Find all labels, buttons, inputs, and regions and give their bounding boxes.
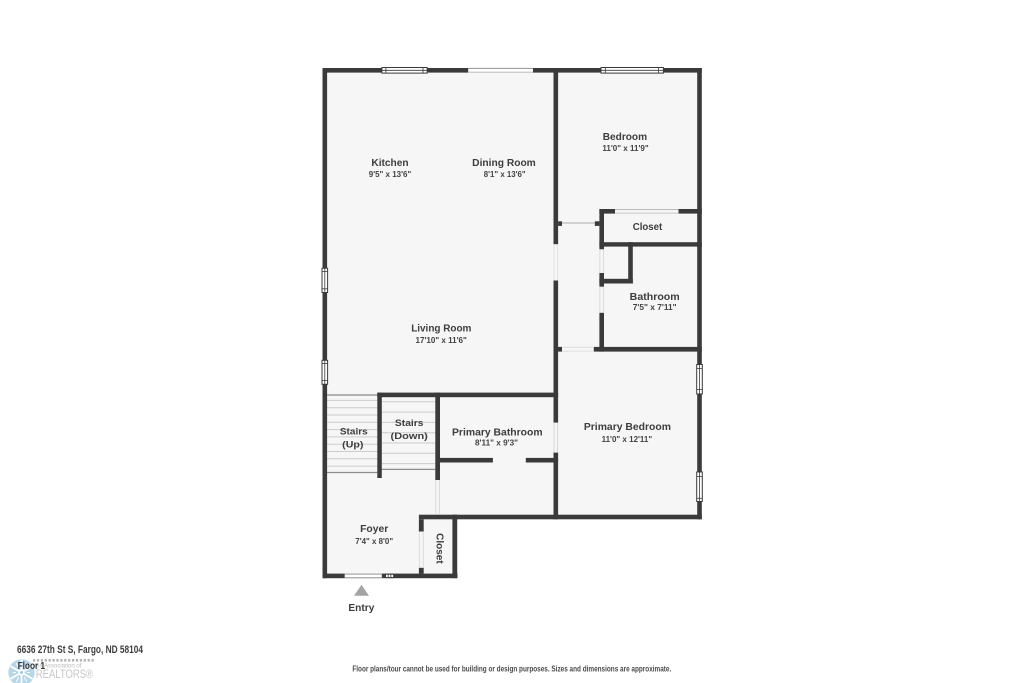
svg-text:6636 27th St S, Fargo, ND 5810: 6636 27th St S, Fargo, ND 58104	[17, 644, 144, 656]
svg-text:Kitchen: Kitchen	[371, 158, 408, 169]
svg-text:8'11" x 9'3": 8'11" x 9'3"	[475, 438, 518, 448]
svg-text:11'0" x 11'9": 11'0" x 11'9"	[602, 143, 648, 153]
svg-text:(Up): (Up)	[342, 439, 363, 450]
svg-text:Dining Room: Dining Room	[472, 158, 536, 169]
svg-text:Primary Bedroom: Primary Bedroom	[584, 422, 671, 433]
svg-text:8'1" x 13'6": 8'1" x 13'6"	[484, 169, 526, 179]
svg-text:Stairs: Stairs	[340, 427, 368, 438]
svg-text:9'5" x 13'6": 9'5" x 13'6"	[369, 169, 412, 179]
svg-text:Bedroom: Bedroom	[603, 132, 647, 143]
svg-text:7'4" x 8'0": 7'4" x 8'0"	[355, 536, 393, 546]
svg-text:Closet: Closet	[633, 222, 663, 233]
svg-text:Stairs: Stairs	[395, 418, 424, 429]
svg-text:11'0" x 12'11": 11'0" x 12'11"	[602, 434, 653, 444]
svg-text:(Down): (Down)	[391, 431, 428, 442]
svg-text:17'10" x 11'6": 17'10" x 11'6"	[416, 335, 467, 345]
svg-text:Closet: Closet	[433, 533, 445, 564]
svg-text:Foyer: Foyer	[360, 524, 388, 535]
svg-text:Living Room: Living Room	[411, 323, 471, 334]
svg-text:Floor plans/tour cannot be use: Floor plans/tour cannot be used for buil…	[352, 664, 671, 673]
svg-text:7'5" x 7'11": 7'5" x 7'11"	[633, 302, 677, 312]
svg-text:Entry: Entry	[348, 602, 374, 614]
svg-text:Floor 1: Floor 1	[18, 661, 46, 672]
